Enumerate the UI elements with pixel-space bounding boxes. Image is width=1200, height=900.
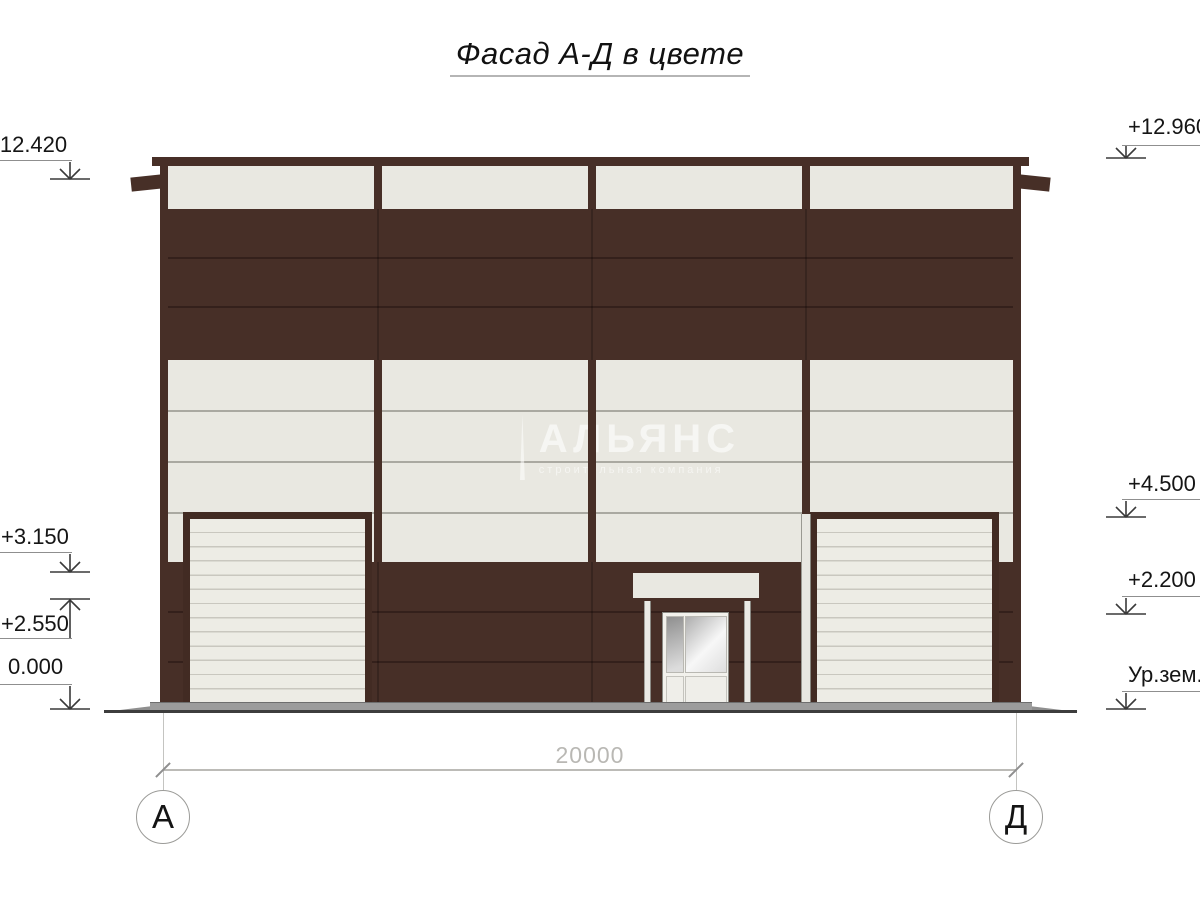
elevation-label: +2.200 xyxy=(1128,567,1196,593)
entrance-door-panel-right xyxy=(685,676,727,703)
axis-line-a xyxy=(163,713,164,790)
elevation-label: +4.500 xyxy=(1128,471,1196,497)
drawing-title: Фасад А-Д в цвете xyxy=(450,36,750,77)
leader-line xyxy=(1122,499,1200,500)
ground-line xyxy=(104,710,1077,713)
entrance-door-glass-right xyxy=(685,616,727,673)
corner-column-right xyxy=(1013,164,1021,703)
elevation-arrow-icon xyxy=(1104,146,1148,159)
canopy-post-left xyxy=(644,601,651,705)
entrance-door-panel-left xyxy=(666,676,684,703)
elevation-label: Ур.зем. xyxy=(1128,662,1200,688)
leader-line xyxy=(1122,596,1200,597)
elevation-arrow-icon xyxy=(1104,501,1148,518)
vertical-joint xyxy=(591,209,593,360)
axis-bubble-d: Д xyxy=(989,790,1043,844)
roof-flashing-right xyxy=(1018,174,1050,191)
vertical-joint xyxy=(805,209,807,360)
watermark-pyramid-icon xyxy=(520,414,525,480)
drawing-title-row: Фасад А-Д в цвете xyxy=(0,36,1200,77)
canopy-post-right xyxy=(744,601,751,705)
vertical-joint xyxy=(377,209,379,360)
leader-line xyxy=(0,552,72,553)
entrance-canopy xyxy=(630,570,762,601)
watermark-tagline: строительная компания xyxy=(539,464,740,476)
roller-door-right xyxy=(817,519,992,703)
watermark-text: АЛЬЯНС строительная компания xyxy=(539,418,740,476)
leader-line xyxy=(0,160,72,161)
elevation-arrow-icon xyxy=(1104,693,1148,710)
mullion xyxy=(374,166,382,209)
mullion xyxy=(802,166,810,209)
axis-line-d xyxy=(1016,713,1017,790)
mullion xyxy=(588,360,596,562)
elevation-arrow-icon xyxy=(48,162,92,180)
roller-door-left xyxy=(190,519,365,703)
downpipe xyxy=(801,514,811,706)
elevation-label: +12.420 xyxy=(0,132,67,158)
roof-flashing-left xyxy=(130,174,162,191)
leader-line xyxy=(0,684,72,685)
elevation-arrow-up-icon xyxy=(48,598,92,639)
mullion xyxy=(374,360,382,562)
parapet-bar xyxy=(152,157,1029,166)
mullion xyxy=(588,166,596,209)
axis-letter-d: Д xyxy=(1005,798,1027,836)
leader-line xyxy=(1122,691,1200,692)
elevation-arrow-icon xyxy=(48,554,92,573)
dimension-line xyxy=(163,769,1016,771)
dimension-value: 20000 xyxy=(530,742,650,769)
vertical-joint xyxy=(591,562,593,702)
vertical-joint xyxy=(377,562,379,702)
entrance-door-glass-left xyxy=(666,616,684,673)
elevation-arrow-icon xyxy=(48,686,92,710)
axis-bubble-a: А xyxy=(136,790,190,844)
elevation-label: 0.000 xyxy=(8,654,63,680)
axis-letter-a: А xyxy=(152,798,174,836)
company-watermark: АЛЬЯНС строительная компания xyxy=(520,405,740,489)
elevation-label: +3.150 xyxy=(1,524,69,550)
elevation-label: +12.960 xyxy=(1128,114,1200,140)
watermark-brand: АЛЬЯНС xyxy=(539,418,740,460)
elevation-arrow-icon xyxy=(1104,598,1148,615)
corner-column-left xyxy=(160,164,168,703)
